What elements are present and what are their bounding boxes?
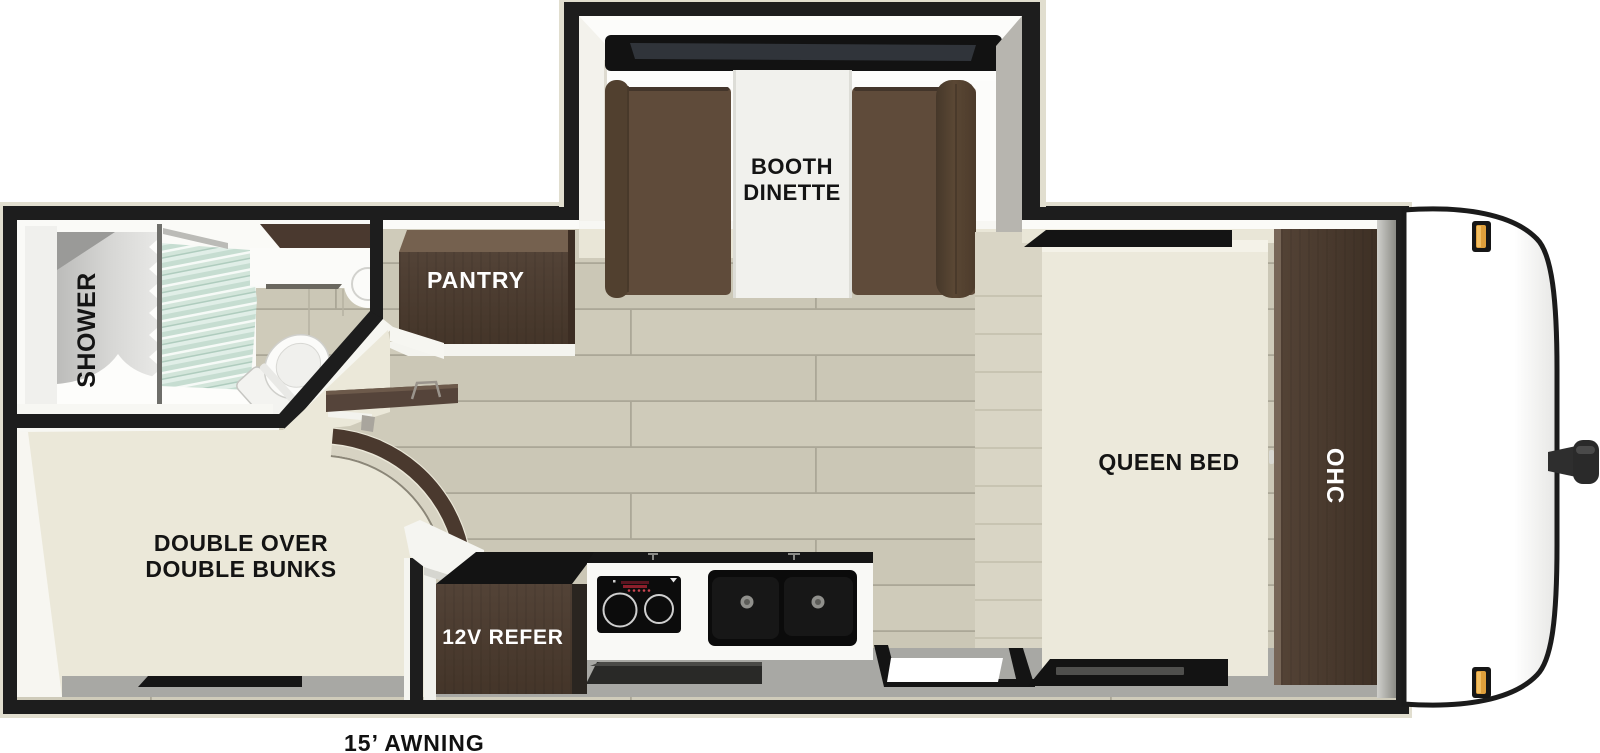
svg-text:15’ AWNING: 15’ AWNING	[344, 730, 485, 753]
svg-text:DOUBLE BUNKS: DOUBLE BUNKS	[145, 556, 336, 582]
svg-text:DINETTE: DINETTE	[743, 180, 841, 205]
svg-text:12V REFER: 12V REFER	[442, 626, 564, 649]
svg-text:PANTRY: PANTRY	[427, 267, 525, 293]
svg-text:BOOTH: BOOTH	[751, 154, 833, 179]
svg-text:DOUBLE OVER: DOUBLE OVER	[154, 530, 328, 556]
svg-text:QUEEN BED: QUEEN BED	[1098, 449, 1239, 475]
svg-text:OHC: OHC	[1321, 448, 1348, 504]
svg-text:SHOWER: SHOWER	[73, 272, 101, 388]
